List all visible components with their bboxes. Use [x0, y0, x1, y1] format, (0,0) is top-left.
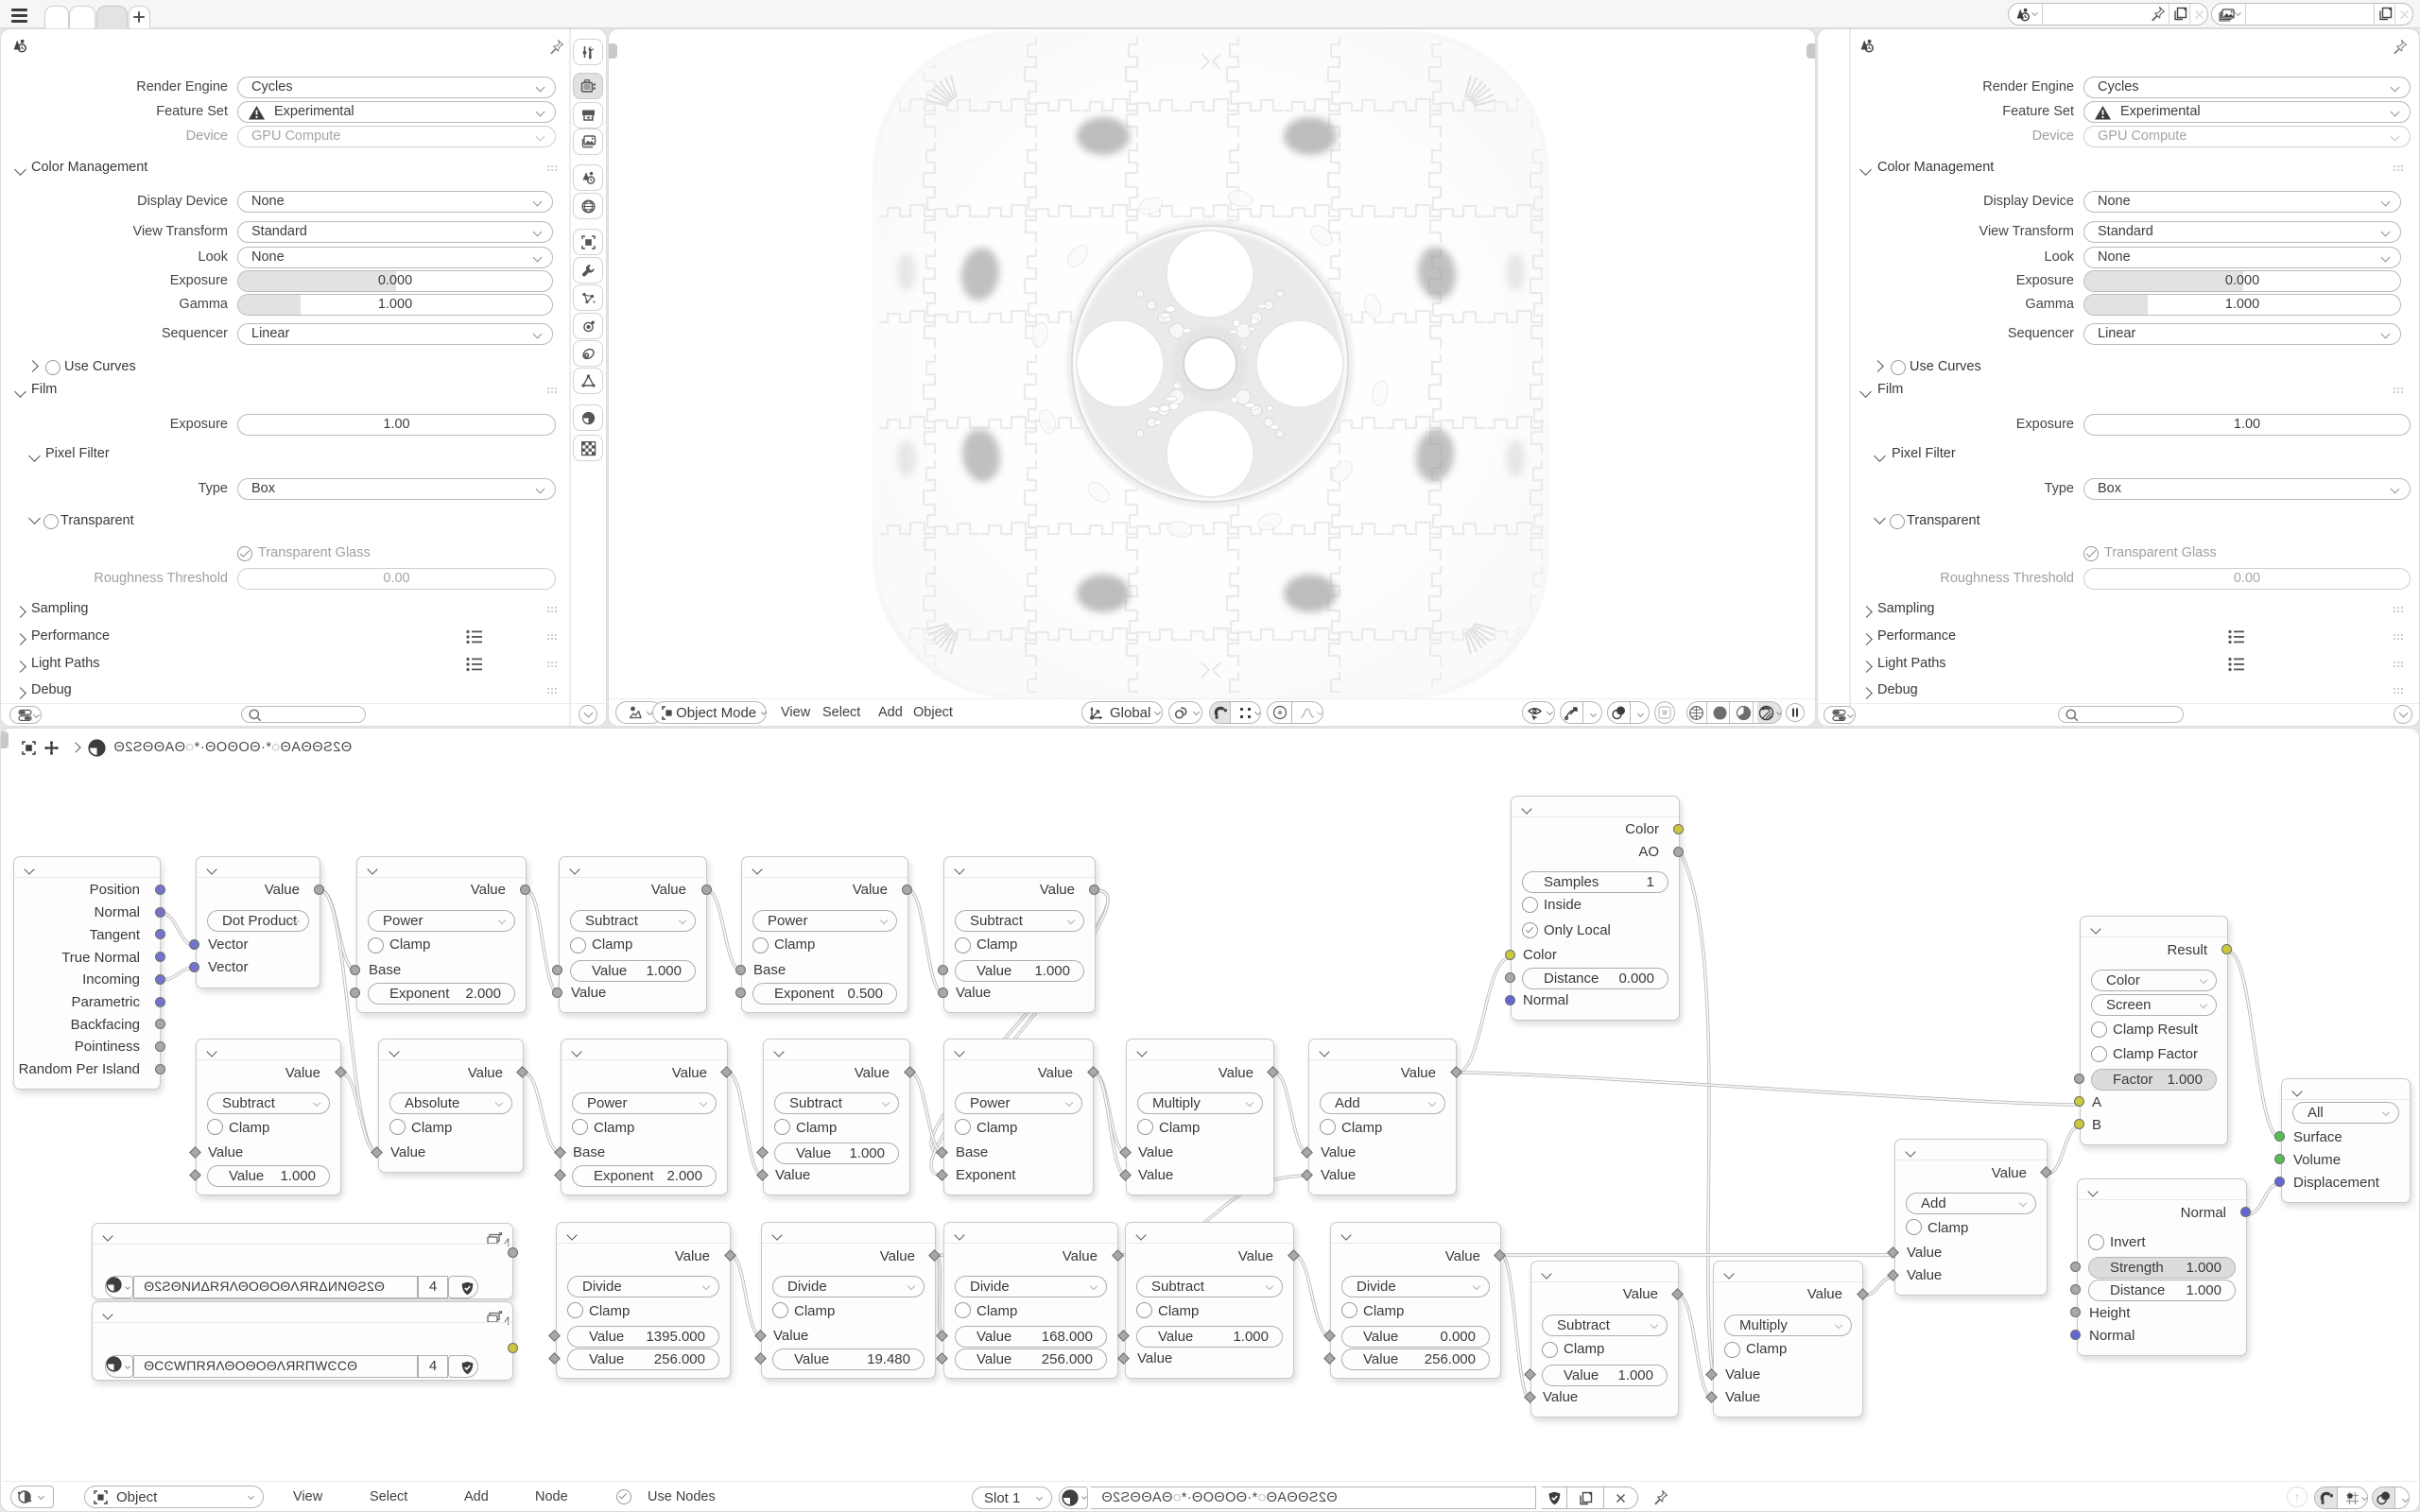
- svg-text:4: 4: [504, 1314, 510, 1328]
